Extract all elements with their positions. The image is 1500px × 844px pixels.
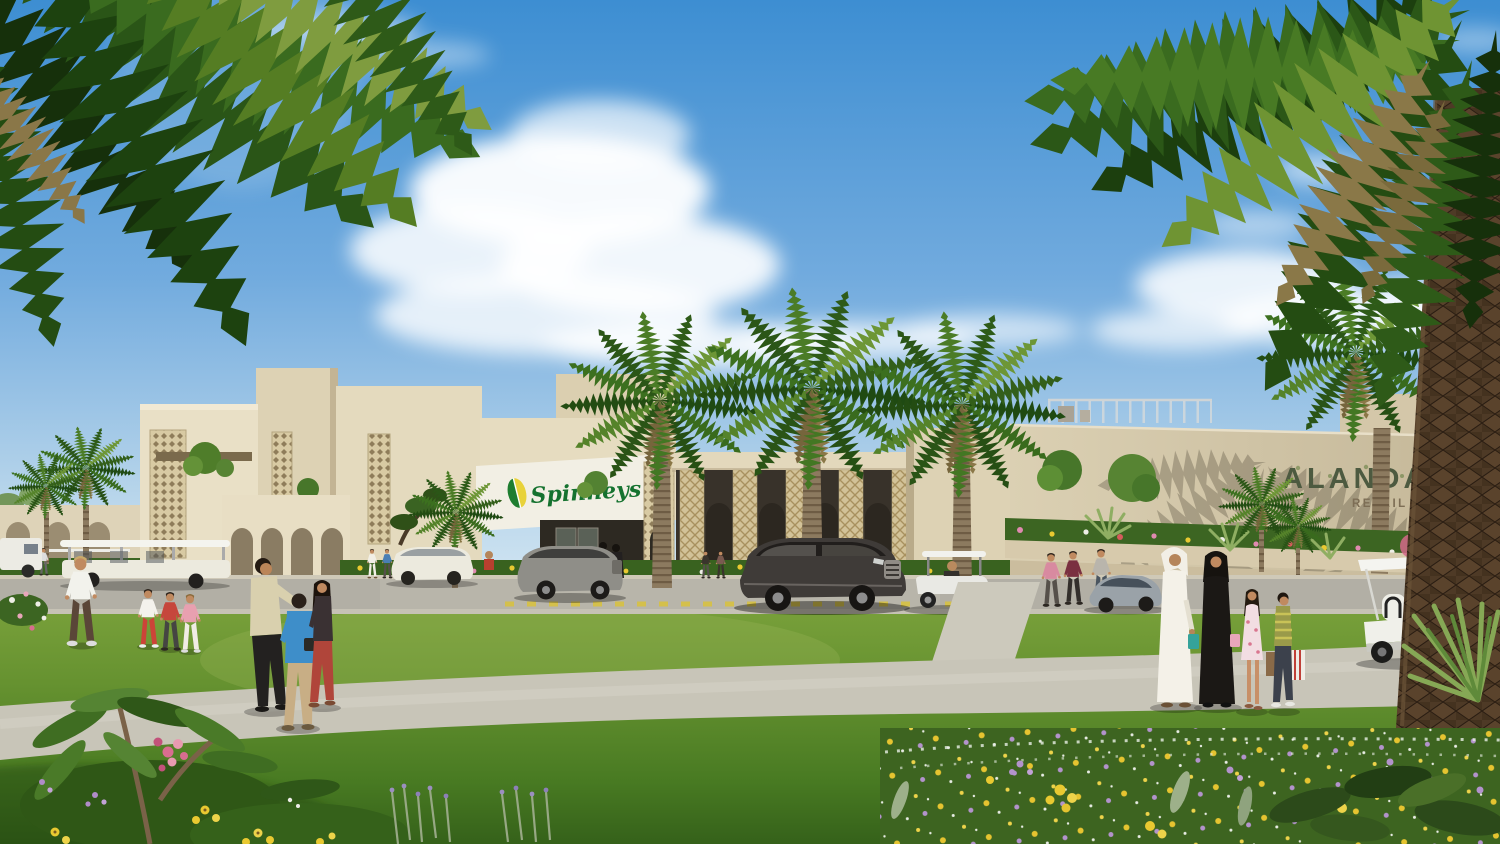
scene: Spinneys (0, 0, 1500, 844)
left-colonnade (222, 495, 350, 577)
pink-shopping-bag (1230, 634, 1240, 647)
white-suv (386, 547, 478, 588)
teal-shopping-bag (1188, 634, 1199, 649)
striped-shopping-bag (1292, 650, 1305, 680)
wildflower-meadow (880, 728, 1500, 844)
dark-suv (734, 538, 910, 615)
retail-center-rendering: Spinneys (0, 0, 1500, 844)
silver-suv (514, 546, 626, 603)
seated-person (484, 551, 494, 570)
